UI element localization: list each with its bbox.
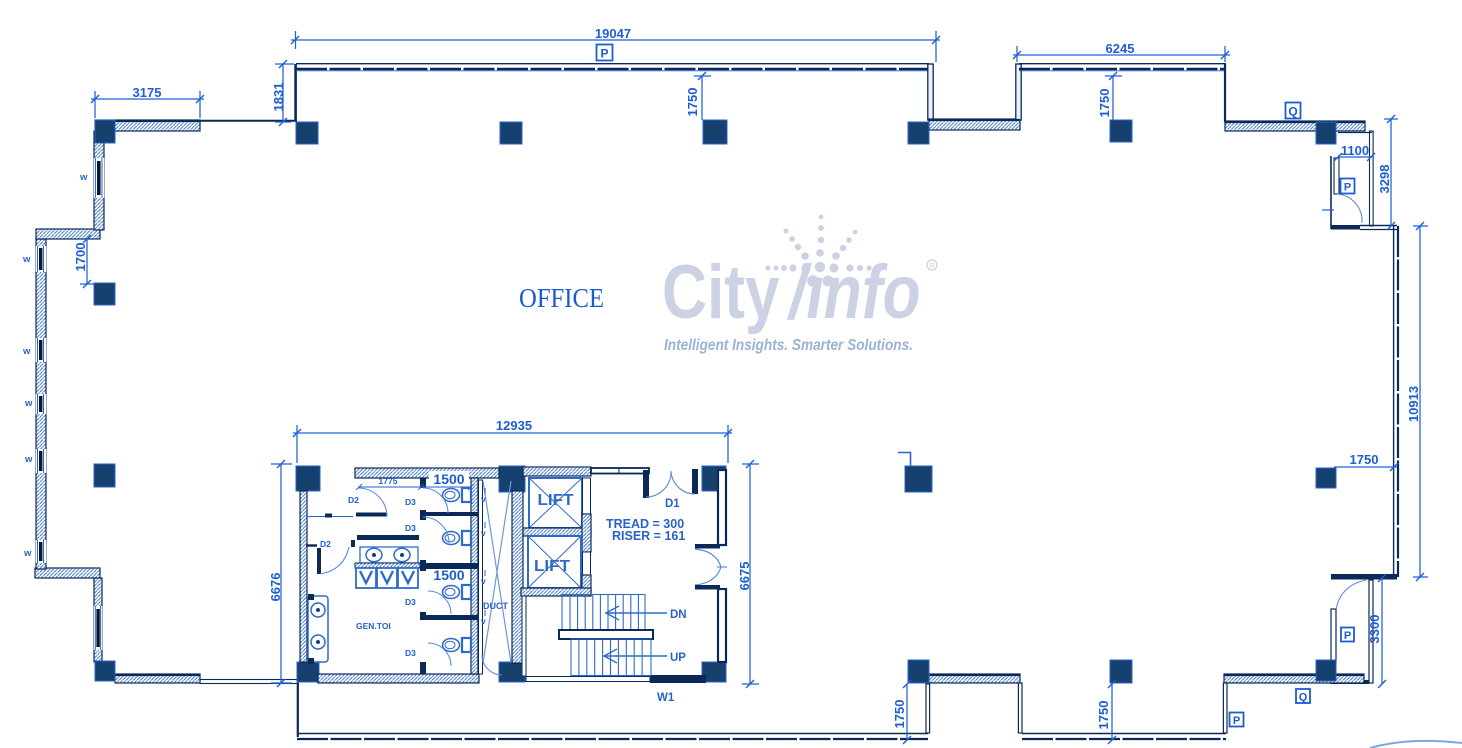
svg-text:GEN.TOI: GEN.TOI [356,621,391,631]
svg-text:10913: 10913 [1406,386,1421,422]
svg-text:Intelligent Insights. Smarter: Intelligent Insights. Smarter Solutions. [664,337,913,354]
svg-text:P: P [600,47,608,61]
svg-text:w: w [22,346,31,357]
svg-text:w: w [24,398,33,409]
svg-text:P: P [1233,715,1240,727]
svg-text:D3: D3 [405,523,416,533]
svg-text:OFFICE: OFFICE [519,283,604,313]
svg-text:Q: Q [1288,105,1297,119]
svg-text:1500: 1500 [433,567,464,583]
svg-text:6675: 6675 [737,562,752,591]
svg-text:12935: 12935 [496,418,532,433]
svg-text:D3: D3 [405,648,416,658]
svg-text:LIFT: LIFT [534,558,570,575]
svg-text:v: v [481,576,486,586]
svg-text:DUCT: DUCT [483,601,508,611]
svg-text:v: v [481,494,486,504]
svg-text:3298: 3298 [1377,165,1392,194]
svg-text:DN: DN [670,609,687,621]
svg-text:6676: 6676 [268,573,283,602]
svg-text:1750: 1750 [1096,701,1111,730]
svg-text:RISER = 161: RISER = 161 [612,529,685,543]
svg-text:UP: UP [670,652,686,664]
svg-text:3175: 3175 [133,85,162,100]
svg-text:1100: 1100 [1341,143,1369,158]
svg-text:6245: 6245 [1106,41,1135,56]
svg-text:1831: 1831 [271,83,286,112]
svg-text:W1: W1 [657,692,675,704]
svg-text:w: w [24,454,33,465]
svg-text:1775: 1775 [379,476,398,486]
svg-text:1750: 1750 [1097,89,1112,118]
svg-text:v: v [481,616,486,626]
svg-text:D3: D3 [405,597,416,607]
svg-text:w: w [22,254,31,265]
svg-text:City: City [662,249,780,334]
svg-text:1750: 1750 [685,88,700,117]
svg-text:w: w [23,548,32,559]
svg-text:D3: D3 [405,497,416,507]
svg-text:Q: Q [1299,692,1308,704]
svg-text:P: P [1344,630,1351,642]
svg-text:P: P [1344,182,1351,194]
svg-text:R: R [929,261,935,270]
svg-text:19047: 19047 [595,26,631,41]
svg-text:1700: 1700 [73,243,88,272]
svg-text:w: w [79,172,88,183]
svg-text:LIFT: LIFT [538,492,574,509]
svg-text:3300: 3300 [1367,615,1382,644]
svg-text:1750: 1750 [1350,452,1379,467]
svg-text:D1: D1 [665,498,680,510]
svg-text:v: v [481,528,486,538]
svg-text:D2: D2 [320,539,331,549]
svg-text:/ınfo: /ınfo [786,249,920,334]
svg-text:D2: D2 [348,495,359,505]
svg-text:1750: 1750 [892,700,907,729]
svg-text:1500: 1500 [433,471,464,487]
